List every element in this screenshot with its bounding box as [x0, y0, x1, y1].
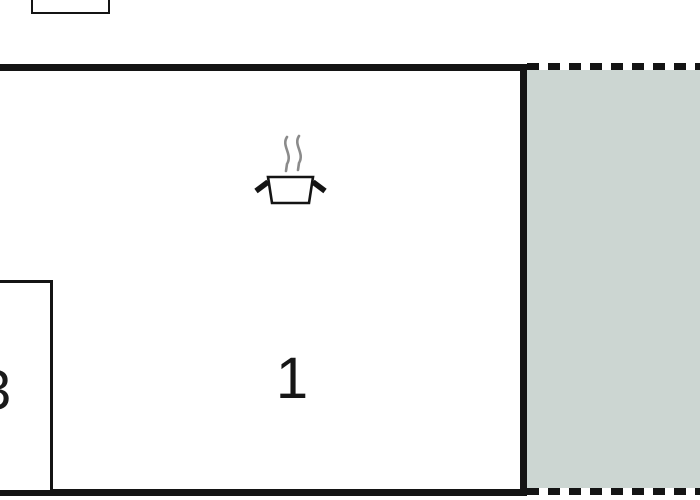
shaft-rectangle — [31, 0, 110, 14]
cooking-pot-icon — [248, 128, 332, 210]
terrace-dashed-border-top — [527, 63, 700, 70]
room-1-label: 1 — [262, 350, 322, 408]
wall-bottom — [0, 489, 527, 496]
terrace-area — [527, 70, 700, 488]
room-adjacent-label: 3 — [0, 362, 16, 418]
steam-icon — [285, 136, 300, 171]
terrace-dashed-border-bottom — [527, 488, 700, 495]
floorplan-canvas: 3 1 — [0, 0, 700, 500]
wall-top — [0, 64, 527, 71]
pot-body — [256, 177, 325, 203]
wall-right — [520, 64, 527, 496]
